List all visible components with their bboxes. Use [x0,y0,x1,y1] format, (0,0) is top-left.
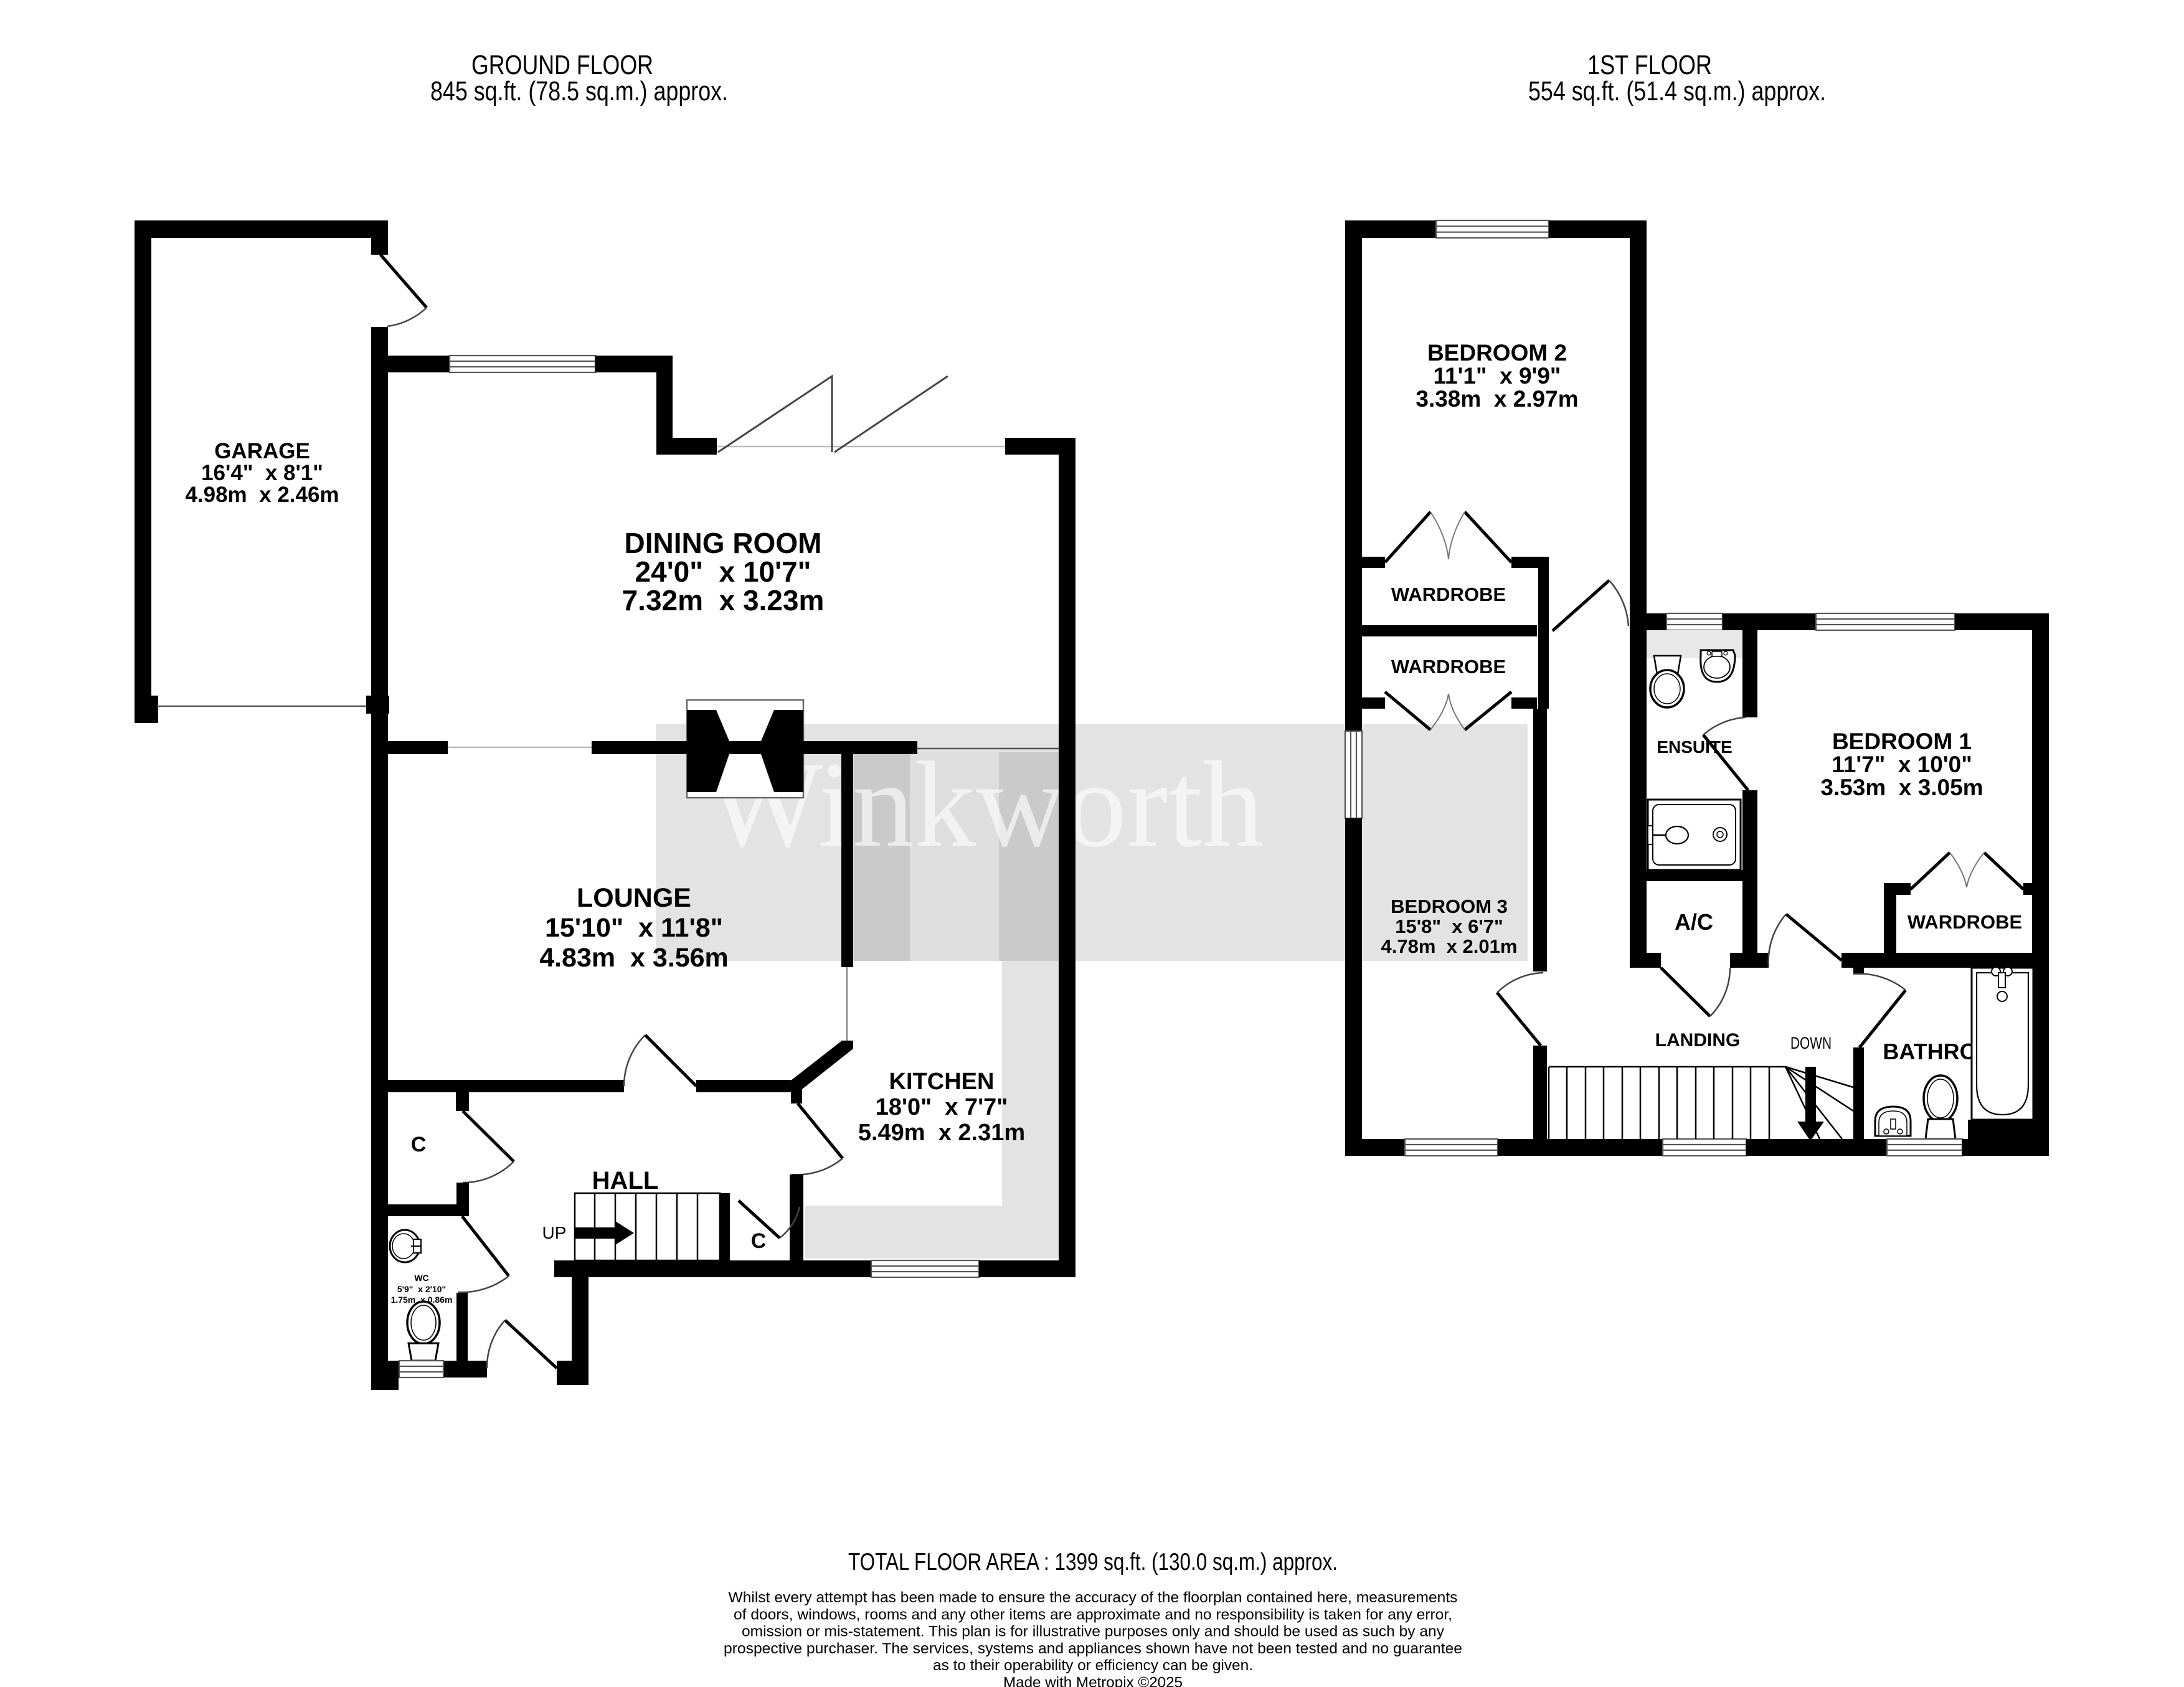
svg-text:11'7" x 10'0": 11'7" x 10'0" [1832,752,1972,777]
svg-text:WARDROBE: WARDROBE [1391,584,1506,605]
svg-text:HALL: HALL [592,1167,659,1194]
svg-text:as to their operability or eff: as to their operability or efficiency ca… [933,1657,1253,1674]
svg-text:15'8" x 6'7": 15'8" x 6'7" [1395,915,1503,937]
svg-text:16'4" x 8'1": 16'4" x 8'1" [201,461,323,485]
svg-text:LANDING: LANDING [1655,1030,1741,1051]
svg-text:Made with Metropix ©2025: Made with Metropix ©2025 [1003,1675,1183,1687]
svg-text:KITCHEN: KITCHEN [889,1069,995,1095]
svg-text:WARDROBE: WARDROBE [1391,656,1506,678]
svg-text:3.38m x 2.97m: 3.38m x 2.97m [1416,386,1578,412]
svg-text:18'0" x 7'7": 18'0" x 7'7" [876,1094,1008,1120]
svg-text:TOTAL FLOOR AREA : 1399 sq.ft.: TOTAL FLOOR AREA : 1399 sq.ft. (130.0 sq… [848,1549,1338,1576]
svg-text:24'0" x 10'7": 24'0" x 10'7" [635,555,811,588]
svg-text:4.98m x 2.46m: 4.98m x 2.46m [185,483,339,507]
svg-text:4.78m x 2.01m: 4.78m x 2.01m [1381,935,1518,957]
svg-text:15'10" x 11'8": 15'10" x 11'8" [545,913,723,943]
svg-text:7.32m x 3.23m: 7.32m x 3.23m [622,584,825,617]
svg-text:ENSUITE: ENSUITE [1657,737,1732,757]
svg-text:BEDROOM 3: BEDROOM 3 [1391,895,1508,917]
svg-text:554 sq.ft. (51.4 sq.m.) approx: 554 sq.ft. (51.4 sq.m.) approx. [1528,76,1826,106]
svg-text:WARDROBE: WARDROBE [1907,911,2022,933]
svg-text:4.83m x 3.56m: 4.83m x 3.56m [539,943,729,973]
svg-text:WC: WC [414,1273,428,1283]
svg-text:5.49m x 2.31m: 5.49m x 2.31m [858,1120,1025,1146]
svg-text:C: C [751,1229,767,1253]
svg-text:DINING ROOM: DINING ROOM [625,527,822,559]
svg-text:DOWN: DOWN [1790,1034,1832,1052]
svg-text:prospective purchaser. The ser: prospective purchaser. The services, sys… [724,1640,1462,1657]
svg-text:LOUNGE: LOUNGE [577,883,691,913]
svg-text:of doors, windows, rooms and a: of doors, windows, rooms and any other i… [734,1606,1452,1623]
svg-text:omission or mis-statement. Thi: omission or mis-statement. This plan is … [742,1623,1444,1640]
svg-text:C: C [411,1133,427,1156]
svg-text:UP: UP [542,1223,567,1242]
svg-text:BEDROOM 2: BEDROOM 2 [1427,340,1567,366]
svg-text:845 sq.ft. (78.5 sq.m.) approx: 845 sq.ft. (78.5 sq.m.) approx. [430,76,728,106]
svg-text:A/C: A/C [1675,909,1713,935]
svg-text:11'1" x 9'9": 11'1" x 9'9" [1434,363,1561,389]
svg-text:5'9" x 2'10": 5'9" x 2'10" [397,1284,446,1294]
svg-text:GARAGE: GARAGE [214,439,310,463]
svg-text:BEDROOM 1: BEDROOM 1 [1832,729,1972,754]
svg-text:Whilst every attempt has been: Whilst every attempt has been made to en… [729,1589,1458,1606]
svg-text:3.53m x 3.05m: 3.53m x 3.05m [1820,775,1983,800]
